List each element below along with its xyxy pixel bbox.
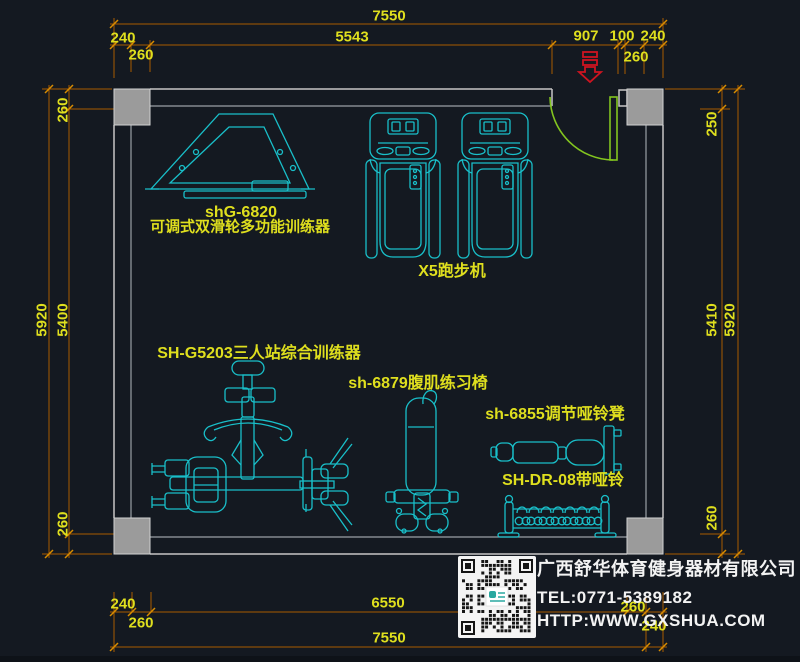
door (550, 97, 617, 160)
treadmill-1-drawing (366, 113, 440, 258)
dim-left-col-bottom: 260 (56, 511, 71, 536)
company-name: 广西舒华体育健身器材有限公司 (537, 560, 796, 578)
dumbbell-bench-6855-drawing (491, 426, 621, 474)
ab-bench-6879-drawing (386, 391, 458, 533)
dim-top-col-right: 260 (623, 50, 648, 65)
column-top-left (114, 89, 150, 125)
dim-top-907: 907 (573, 29, 598, 44)
trainer-shg6820-drawing (145, 114, 315, 198)
qr-code (458, 556, 536, 638)
dim-bottom-col-left: 260 (128, 616, 153, 631)
company-phone: TEL:0771-5389182 (537, 589, 692, 606)
label-ab-bench: sh-6879腹肌练习椅 (348, 376, 488, 392)
dim-bottom-total: 7550 (372, 631, 405, 646)
entry-arrow-icon (579, 52, 601, 82)
dim-top-wall-right: 240 (640, 29, 665, 44)
column-bottom-right (627, 518, 663, 554)
station-g5203-drawing (152, 361, 352, 531)
dim-top-wall-left: 240 (110, 31, 135, 46)
bottom-edge (0, 656, 800, 662)
dim-top-100: 100 (609, 29, 634, 44)
dumbbell-rack-drawing (498, 496, 616, 538)
column-top-right (627, 89, 663, 125)
dim-right-top: 250 (705, 111, 720, 136)
dim-left-inner: 5400 (56, 303, 71, 336)
label-station: SH-G5203三人站综合训练器 (157, 346, 361, 362)
dim-bottom-wall-left: 240 (110, 597, 135, 612)
dim-right-col-bottom: 260 (705, 505, 720, 530)
dim-top-col-left: 260 (128, 48, 153, 63)
company-website: HTTP:WWW.GXSHUA.COM (537, 612, 766, 629)
dim-top-5543: 5543 (335, 30, 368, 45)
dim-left-col-top: 260 (56, 97, 71, 122)
column-bottom-left (114, 518, 150, 554)
dim-top-total: 7550 (372, 9, 405, 24)
qr-center-logo (486, 587, 508, 606)
treadmill-2-drawing (458, 113, 532, 258)
label-trainer-name: 可调式双滑轮多功能训练器 (150, 220, 330, 235)
label-dumbbell-rack: SH-DR-08带哑铃 (502, 473, 624, 489)
dim-bottom-inner: 6550 (371, 596, 404, 611)
label-dumbbell-bench: sh-6855调节哑铃凳 (485, 407, 625, 423)
dim-right-inner: 5410 (705, 303, 720, 336)
dim-left-total: 5920 (35, 303, 50, 336)
dim-right-total: 5920 (723, 303, 738, 336)
label-treadmill: X5跑步机 (418, 264, 486, 280)
cad-floor-plan: 7550 240 5543 907 100 240 260 260 5920 5… (0, 0, 800, 662)
